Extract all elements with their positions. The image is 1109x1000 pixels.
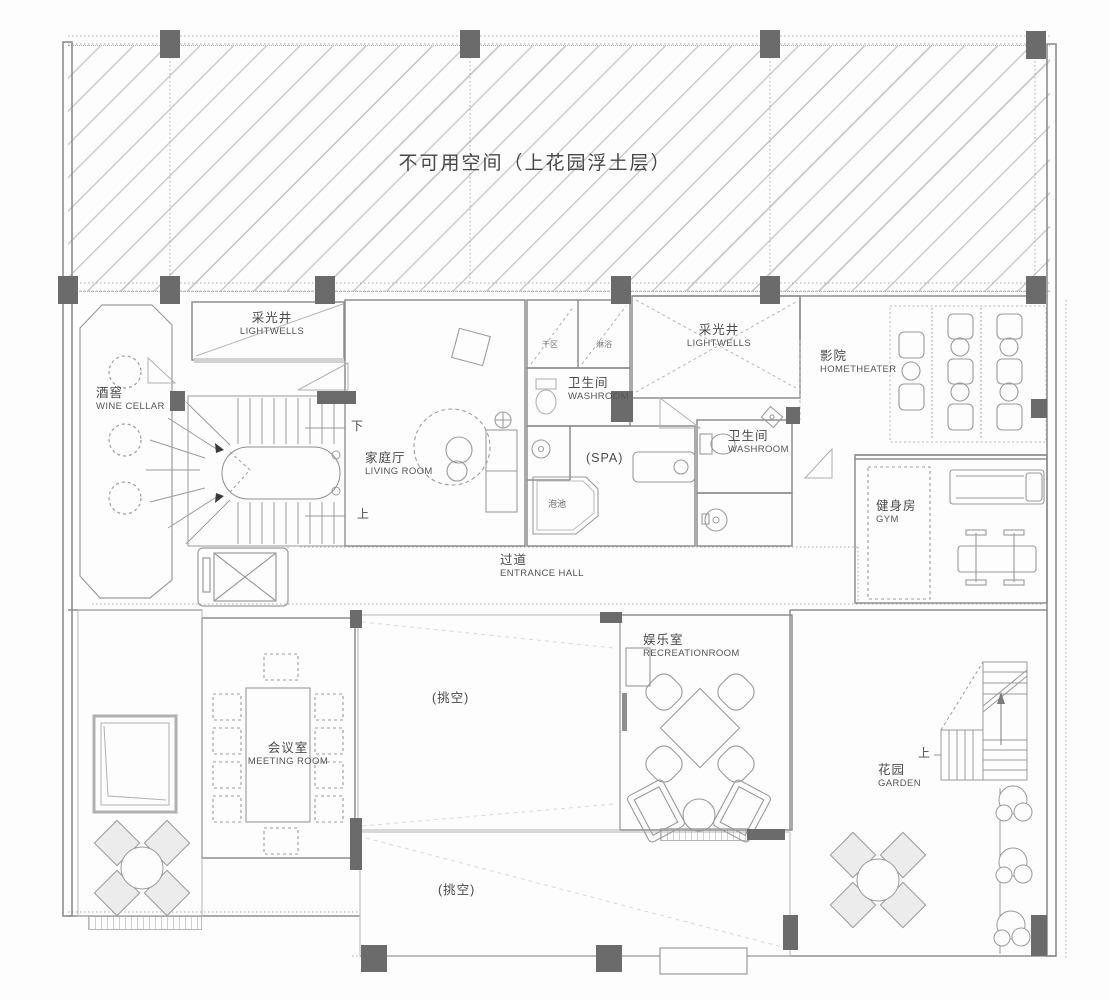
- label-en: WASHROOM: [728, 444, 789, 456]
- label-en: WINE CELLAR: [96, 401, 165, 413]
- outdoor-table-garden: [830, 832, 925, 927]
- recreation-room-furniture: [622, 648, 772, 843]
- annotation-dry-area: 干区: [542, 340, 558, 350]
- room-label-spa: (SPA): [586, 450, 623, 466]
- label-zh: 娱乐室: [643, 632, 740, 648]
- label-zh: 影院: [820, 348, 897, 364]
- room-label-washroom-lower: 卫生间 WASHROOM: [728, 428, 789, 457]
- label-zh: 过道: [500, 552, 584, 568]
- room-label-garden: 花园 GARDEN: [878, 762, 921, 791]
- outdoor-frame: [94, 716, 176, 812]
- label-en: LIGHTWELLS: [679, 338, 759, 350]
- label-zh: 卫生间: [728, 428, 789, 444]
- label-en: WASHROOM: [568, 391, 629, 403]
- floor-plan: 不可用空间（上花园浮土层） 采光井 LIGHTWELLS 酒窖 WINE CEL…: [0, 0, 1109, 1000]
- living-room-furniture: [414, 328, 517, 512]
- label-zh: 采光井: [679, 322, 759, 338]
- label-zh: 花园: [878, 762, 921, 778]
- label-en: GARDEN: [878, 778, 921, 790]
- room-label-washroom-upper: 卫生间 WASHROOM: [568, 375, 629, 404]
- room-label-home-theater: 影院 HOMETHEATER: [820, 348, 897, 377]
- staircase-main: [146, 396, 345, 546]
- label-en: GYM: [876, 514, 917, 526]
- room-label-lightwells-right: 采光井 LIGHTWELLS: [679, 322, 759, 351]
- outdoor-table-left: [94, 820, 189, 915]
- label-zh: 卫生间: [568, 375, 629, 391]
- label-zh: (SPA): [586, 450, 623, 466]
- label-zh: 会议室: [233, 740, 343, 756]
- annotation-shower: 淋浴: [596, 340, 612, 350]
- label-zh: (挑空): [432, 690, 469, 706]
- gym-equipment: [868, 467, 1044, 599]
- threshold-steps: [660, 948, 747, 974]
- unusable-space-title: 不可用空间（上花园浮土层）: [340, 148, 730, 175]
- home-theater-seats: [899, 308, 1022, 438]
- label-en: ENTRANCE HALL: [500, 568, 584, 580]
- sink-room-fixtures: [702, 509, 727, 531]
- room-label-living-room: 家庭厅 LIVING ROOM: [365, 450, 433, 479]
- annotation-soak-pool: 泡池: [548, 499, 566, 511]
- label-zh: 酒窖: [96, 385, 165, 401]
- annotation-garden-stair-up: 上: [918, 746, 930, 762]
- label-en: LIGHTWELLS: [232, 326, 312, 338]
- label-zh: 采光井: [232, 310, 312, 326]
- elevator: [198, 548, 288, 606]
- label-en: MEETING ROOM: [233, 756, 343, 768]
- label-zh: (挑空): [438, 882, 475, 898]
- annotation-stair-up: 上: [357, 507, 369, 523]
- room-label-gym: 健身房 GYM: [876, 498, 917, 527]
- annotation-stair-down: 下: [351, 419, 363, 435]
- room-label-entrance-hall: 过道 ENTRANCE HALL: [500, 552, 584, 581]
- label-en: HOMETHEATER: [820, 364, 897, 376]
- room-label-lightwells-left: 采光井 LIGHTWELLS: [232, 310, 312, 339]
- void-lines: [362, 622, 786, 948]
- label-en: RECREATIONROOM: [643, 648, 740, 660]
- wine-cellar: [80, 305, 172, 598]
- label-zh: 家庭厅: [365, 450, 433, 466]
- room-label-recreation-room: 娱乐室 RECREATIONROOM: [643, 632, 740, 661]
- label-zh: 健身房: [876, 498, 917, 514]
- room-label-wine-cellar: 酒窖 WINE CELLAR: [96, 385, 165, 414]
- garden-stairs: [934, 662, 1027, 780]
- room-label-meeting-room: 会议室 MEETING ROOM: [233, 740, 343, 769]
- garden-plants: [994, 786, 1032, 954]
- label-en: LIVING ROOM: [365, 466, 433, 478]
- room-label-void-upper: (挑空): [432, 690, 469, 706]
- room-label-void-lower: (挑空): [438, 882, 475, 898]
